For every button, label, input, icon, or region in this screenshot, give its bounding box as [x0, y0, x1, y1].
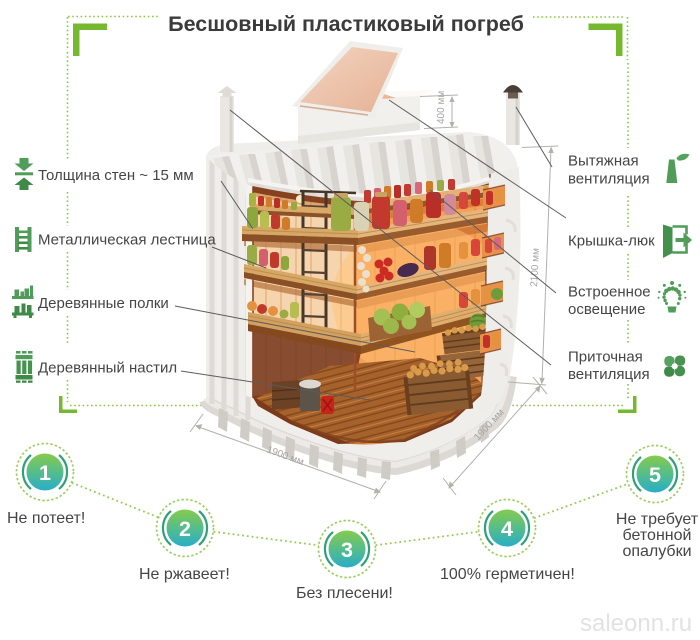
svg-text:2100 мм: 2100 мм — [529, 248, 542, 287]
svg-text:Не ржавеет!: Не ржавеет! — [139, 566, 230, 583]
svg-text:1: 1 — [39, 461, 51, 485]
svg-text:освещение: освещение — [568, 301, 646, 318]
svg-text:Без плесени!: Без плесени! — [296, 585, 393, 602]
svg-text:Деревянные полки: Деревянные полки — [38, 295, 169, 312]
svg-text:4: 4 — [501, 517, 513, 541]
svg-text:вентиляция: вентиляция — [568, 171, 650, 188]
svg-text:Деревянный настил: Деревянный настил — [38, 360, 177, 377]
svg-text:Бесшовный пластиковый погреб: Бесшовный пластиковый погреб — [168, 12, 524, 36]
svg-text:100% герметичен!: 100% герметичен! — [440, 566, 575, 583]
svg-text:400 мм: 400 мм — [436, 91, 447, 124]
svg-text:Встроенное: Встроенное — [568, 284, 651, 301]
svg-text:Металлическая лестница: Металлическая лестница — [38, 232, 216, 249]
svg-text:3: 3 — [341, 538, 353, 562]
svg-text:Вытяжная: Вытяжная — [568, 153, 639, 170]
svg-text:saleonn.ru: saleonn.ru — [580, 610, 692, 637]
svg-text:вентиляция: вентиляция — [568, 366, 650, 383]
svg-text:бетонной: бетонной — [623, 527, 692, 544]
svg-text:Толщина стен ~ 15 мм: Толщина стен ~ 15 мм — [38, 167, 194, 184]
svg-text:5: 5 — [649, 463, 661, 487]
svg-text:2: 2 — [179, 517, 191, 541]
svg-text:Приточная: Приточная — [568, 349, 643, 366]
svg-text:Крышка-люк: Крышка-люк — [568, 233, 655, 250]
svg-text:Не потеет!: Не потеет! — [7, 510, 85, 527]
svg-text:опалубки: опалубки — [622, 543, 691, 560]
svg-text:Не требует: Не требует — [616, 511, 699, 528]
